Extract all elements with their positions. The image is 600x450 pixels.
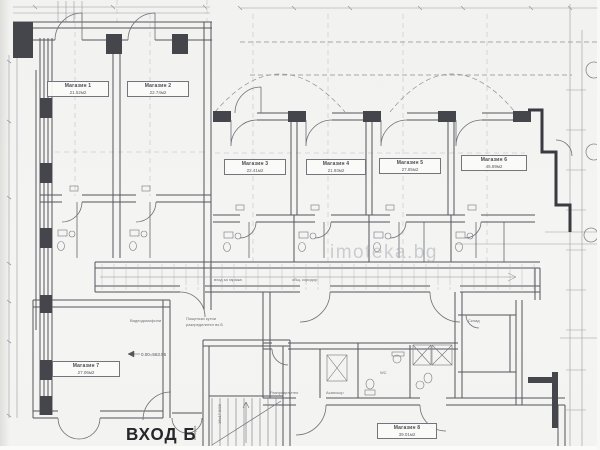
projection-dashed [215,42,598,112]
note-video: Видеодомофони [130,318,161,323]
door-swings [55,13,572,439]
room-elevator-label: Асансьор [326,390,344,395]
note-mail-2: разпределител вх.Б [186,322,223,327]
room-label-shop-5: Магазин 5 27.85м2 [379,158,441,174]
room-label-shop-4: Магазин 4 21.93м2 [306,159,366,175]
stepped-wall [528,110,570,232]
corridor-note-left: вход за гаража [214,277,243,282]
floor-plan-scan: 0.00=563.55 вход за гаража общ. коридор … [0,0,600,450]
note-mail: Пощенски кутии [186,316,216,321]
watermark-text: imoteka.bg [330,242,438,264]
room-area: 22.41м2 [227,168,283,174]
scan-edge-left [0,0,10,450]
corridor-note-right: общ. коридор [292,277,318,282]
room-wc-label: WC [380,370,387,375]
room-storage-label: Склад [468,318,480,323]
floorplan-drawing: 0.00=563.55 вход за гаража общ. коридор … [0,0,600,450]
room-area: 27.06м2 [55,370,117,376]
room-area: 39.01м2 [380,432,434,438]
dimension-lines [7,1,598,447]
room-area: 22.74м2 [130,90,186,96]
stair-note: 16х17.5/28 [217,403,222,424]
room-label-shop-3: Магазин 3 22.41м2 [224,159,286,175]
room-label-shop-8: Магазин 8 39.01м2 [377,423,437,439]
room-distribution-label: Разпределител [270,390,299,395]
room-label-shop-1: Магазин 1 21.52м2 [47,81,109,97]
room-label-shop-6: Магазин 6 45.89м2 [461,155,527,171]
room-area: 21.52м2 [50,90,106,96]
scan-edge-bottom [0,446,600,450]
room-label-shop-2: Магазин 2 22.74м2 [127,81,189,97]
room-area: 45.89м2 [464,164,524,170]
entrance-label: ВХОД Б [126,425,197,446]
room-area: 21.93м2 [309,168,363,174]
level-mark: 0.00=563.55 [128,351,167,357]
annotations: вход за гаража общ. коридор Видеодомофон… [130,277,480,440]
room-area: 27.85м2 [382,167,438,173]
level-mark-text: 0.00=563.55 [141,352,167,357]
room-label-shop-7: Магазин 7 27.06м2 [52,361,120,377]
